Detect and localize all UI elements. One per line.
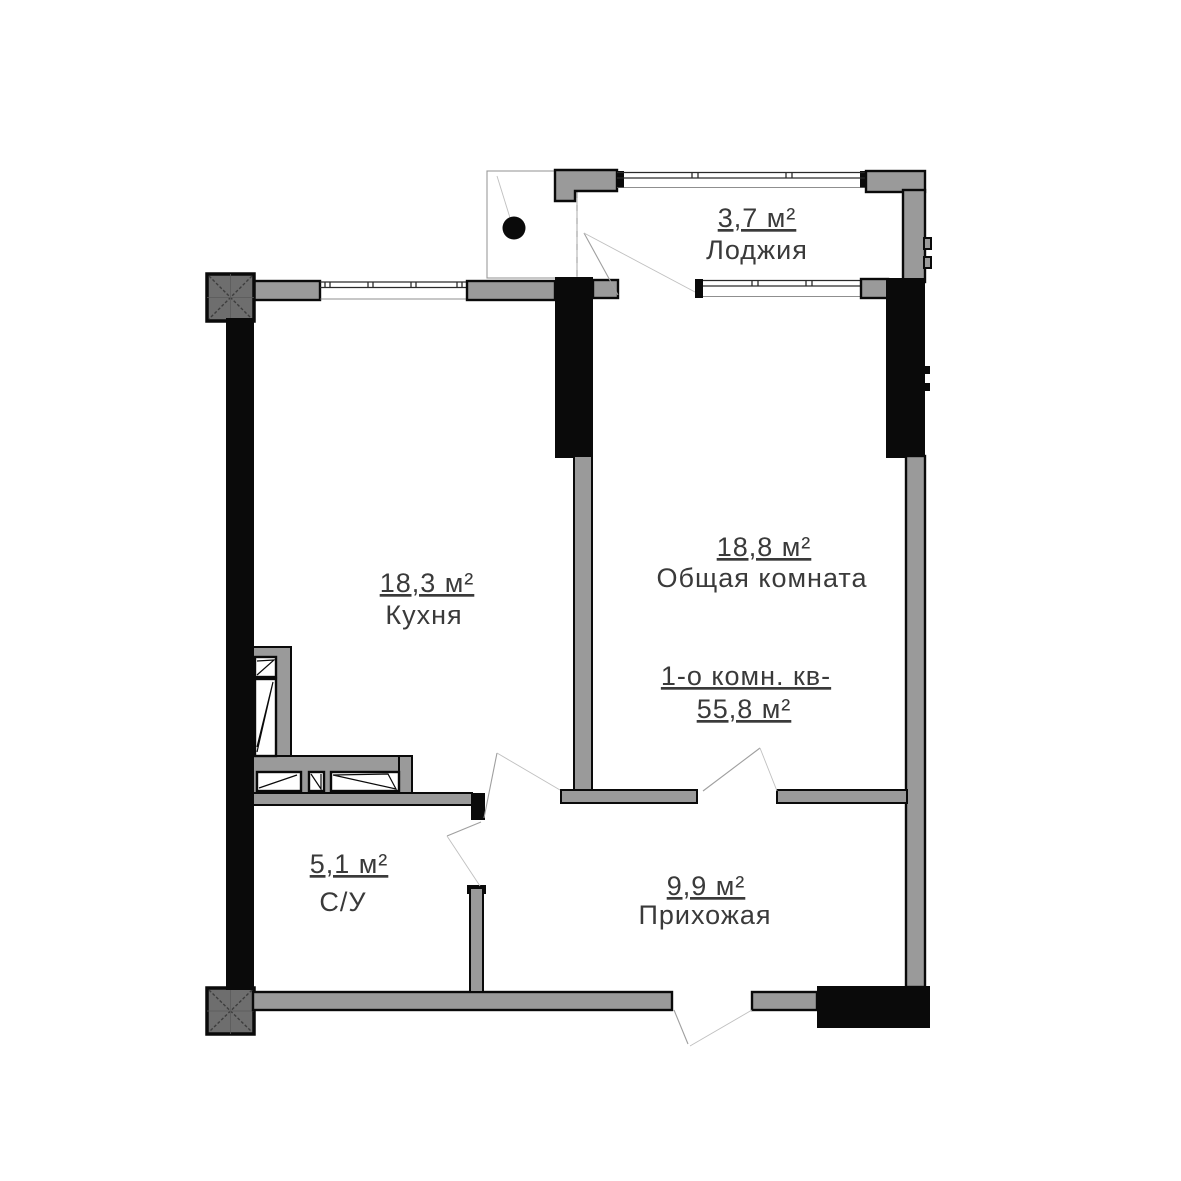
apartment-total-area-label: 55,8 м² <box>697 694 792 724</box>
shaft-box <box>257 772 301 791</box>
pier-center <box>555 277 593 458</box>
floor-plan-svg: 3,7 м² Лоджия 18,3 м² Кухня 18,8 м² Обща… <box>0 0 1181 1181</box>
bath-top-wall <box>253 793 472 805</box>
hall-name-label: Прихожая <box>638 900 771 930</box>
loggia-column-dot <box>503 217 526 240</box>
bottom-wall-right <box>752 992 817 1010</box>
shaft-box <box>255 679 276 756</box>
column-bottom-left <box>207 988 254 1034</box>
bottom-wall-left <box>253 992 672 1010</box>
bath-hall-divider <box>470 888 483 992</box>
bath-door-jamb <box>471 793 485 820</box>
column-top-left <box>207 274 254 321</box>
bath-area-label: 5,1 м² <box>310 849 389 879</box>
shaft-wall-end <box>399 756 412 793</box>
apartment-title-label: 1-о комн. кв- <box>661 661 831 691</box>
shaft-box <box>309 772 324 791</box>
pier-right <box>886 278 925 458</box>
loggia-name-label: Лоджия <box>706 235 808 265</box>
left-wall <box>226 318 254 990</box>
shaft-box <box>255 657 276 677</box>
hall-top-wall-left <box>561 790 697 803</box>
shaft-box <box>331 772 399 791</box>
kitchen-living-divider <box>574 456 592 792</box>
loggia-right-wall <box>903 190 925 282</box>
wall-notch <box>924 257 931 268</box>
hall-top-wall-right <box>777 790 907 803</box>
right-wall <box>906 456 925 987</box>
loggia-area-label: 3,7 м² <box>718 203 797 233</box>
hall-area-label: 9,9 м² <box>667 871 746 901</box>
floor-plan: 3,7 м² Лоджия 18,3 м² Кухня 18,8 м² Обща… <box>0 0 1181 1181</box>
kitchen-name-label: Кухня <box>385 600 462 630</box>
wall-notch <box>924 238 931 249</box>
bath-name-label: С/У <box>319 887 366 917</box>
kitchen-area-label: 18,3 м² <box>380 568 475 598</box>
living-name-label: Общая комната <box>657 563 868 593</box>
living-area-label: 18,8 м² <box>717 532 812 562</box>
bottom-right-pier <box>817 986 930 1028</box>
wall-notch <box>924 366 930 374</box>
wall-notch <box>924 383 930 391</box>
